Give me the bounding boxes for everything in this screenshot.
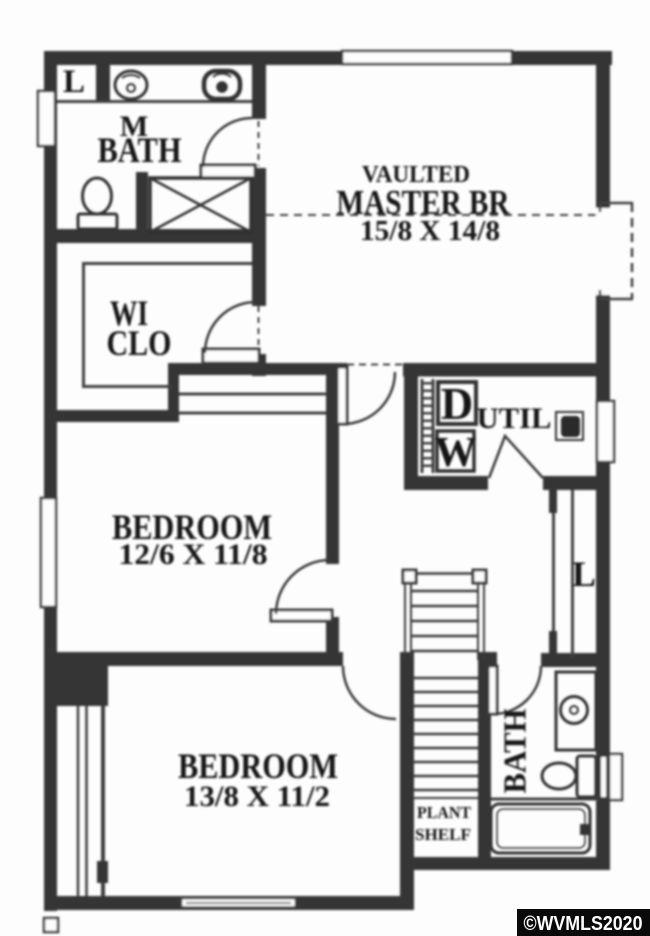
svg-text:©WVMLS2020: ©WVMLS2020 [524,913,643,935]
svg-text:W: W [435,430,477,476]
svg-text:13/8 X 11/2: 13/8 X 11/2 [184,780,330,813]
svg-text:12/6 X 11/8: 12/6 X 11/8 [119,538,268,571]
svg-text:CLO: CLO [107,323,172,363]
svg-text:L: L [572,554,596,594]
svg-text:L: L [63,64,85,100]
svg-text:BATH: BATH [98,130,182,170]
svg-text:D: D [441,379,474,429]
svg-text:UTIL: UTIL [477,402,552,435]
svg-text:BATH: BATH [496,708,532,793]
svg-text:15/8 X 14/8: 15/8 X 14/8 [360,215,500,247]
svg-text:SHELF: SHELF [415,825,471,844]
svg-text:PLANT: PLANT [417,803,472,822]
